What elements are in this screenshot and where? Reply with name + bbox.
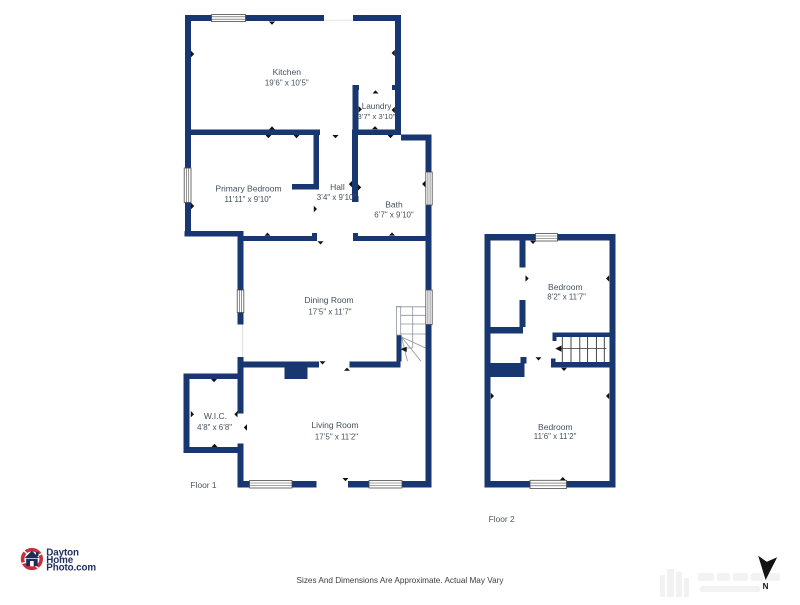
svg-text:N: N [763, 582, 769, 591]
svg-text:11’11" x 9’10": 11’11" x 9’10" [225, 195, 272, 204]
svg-text:6’7" x 9’10": 6’7" x 9’10" [374, 210, 414, 219]
svg-text:Bedroom: Bedroom [548, 282, 583, 292]
svg-text:Dining Room: Dining Room [304, 295, 353, 305]
svg-text:19’6" x 10’5": 19’6" x 10’5" [265, 79, 309, 88]
svg-text:Sizes And Dimensions Are Appro: Sizes And Dimensions Are Approximate. Ac… [297, 576, 505, 585]
svg-text:11’6" x 11’2": 11’6" x 11’2" [534, 432, 577, 441]
svg-text:Living Room: Living Room [311, 420, 358, 430]
svg-text:4’8" x 6’8": 4’8" x 6’8" [197, 423, 232, 432]
svg-text:17’5" x 11’2": 17’5" x 11’2" [315, 432, 358, 441]
svg-text:Kitchen: Kitchen [273, 67, 302, 77]
svg-text:3’7" x 3’10": 3’7" x 3’10" [358, 112, 396, 121]
svg-text:Bedroom: Bedroom [538, 422, 573, 432]
svg-text:Hall: Hall [330, 182, 345, 192]
svg-text:Floor 1: Floor 1 [191, 480, 217, 490]
svg-text:8’2" x 11’7": 8’2" x 11’7" [547, 292, 586, 301]
svg-text:W.I.C.: W.I.C. [204, 411, 227, 421]
svg-text:Floor 2: Floor 2 [489, 514, 515, 524]
svg-text:Photo.com: Photo.com [46, 563, 96, 574]
svg-text:17’5" x 11’7": 17’5" x 11’7" [308, 307, 351, 316]
svg-text:3’4" x 9’10": 3’4" x 9’10" [317, 193, 357, 202]
svg-text:Laundry: Laundry [362, 102, 392, 111]
svg-text:Primary Bedroom: Primary Bedroom [215, 184, 281, 194]
svg-text:Bath: Bath [385, 200, 403, 210]
